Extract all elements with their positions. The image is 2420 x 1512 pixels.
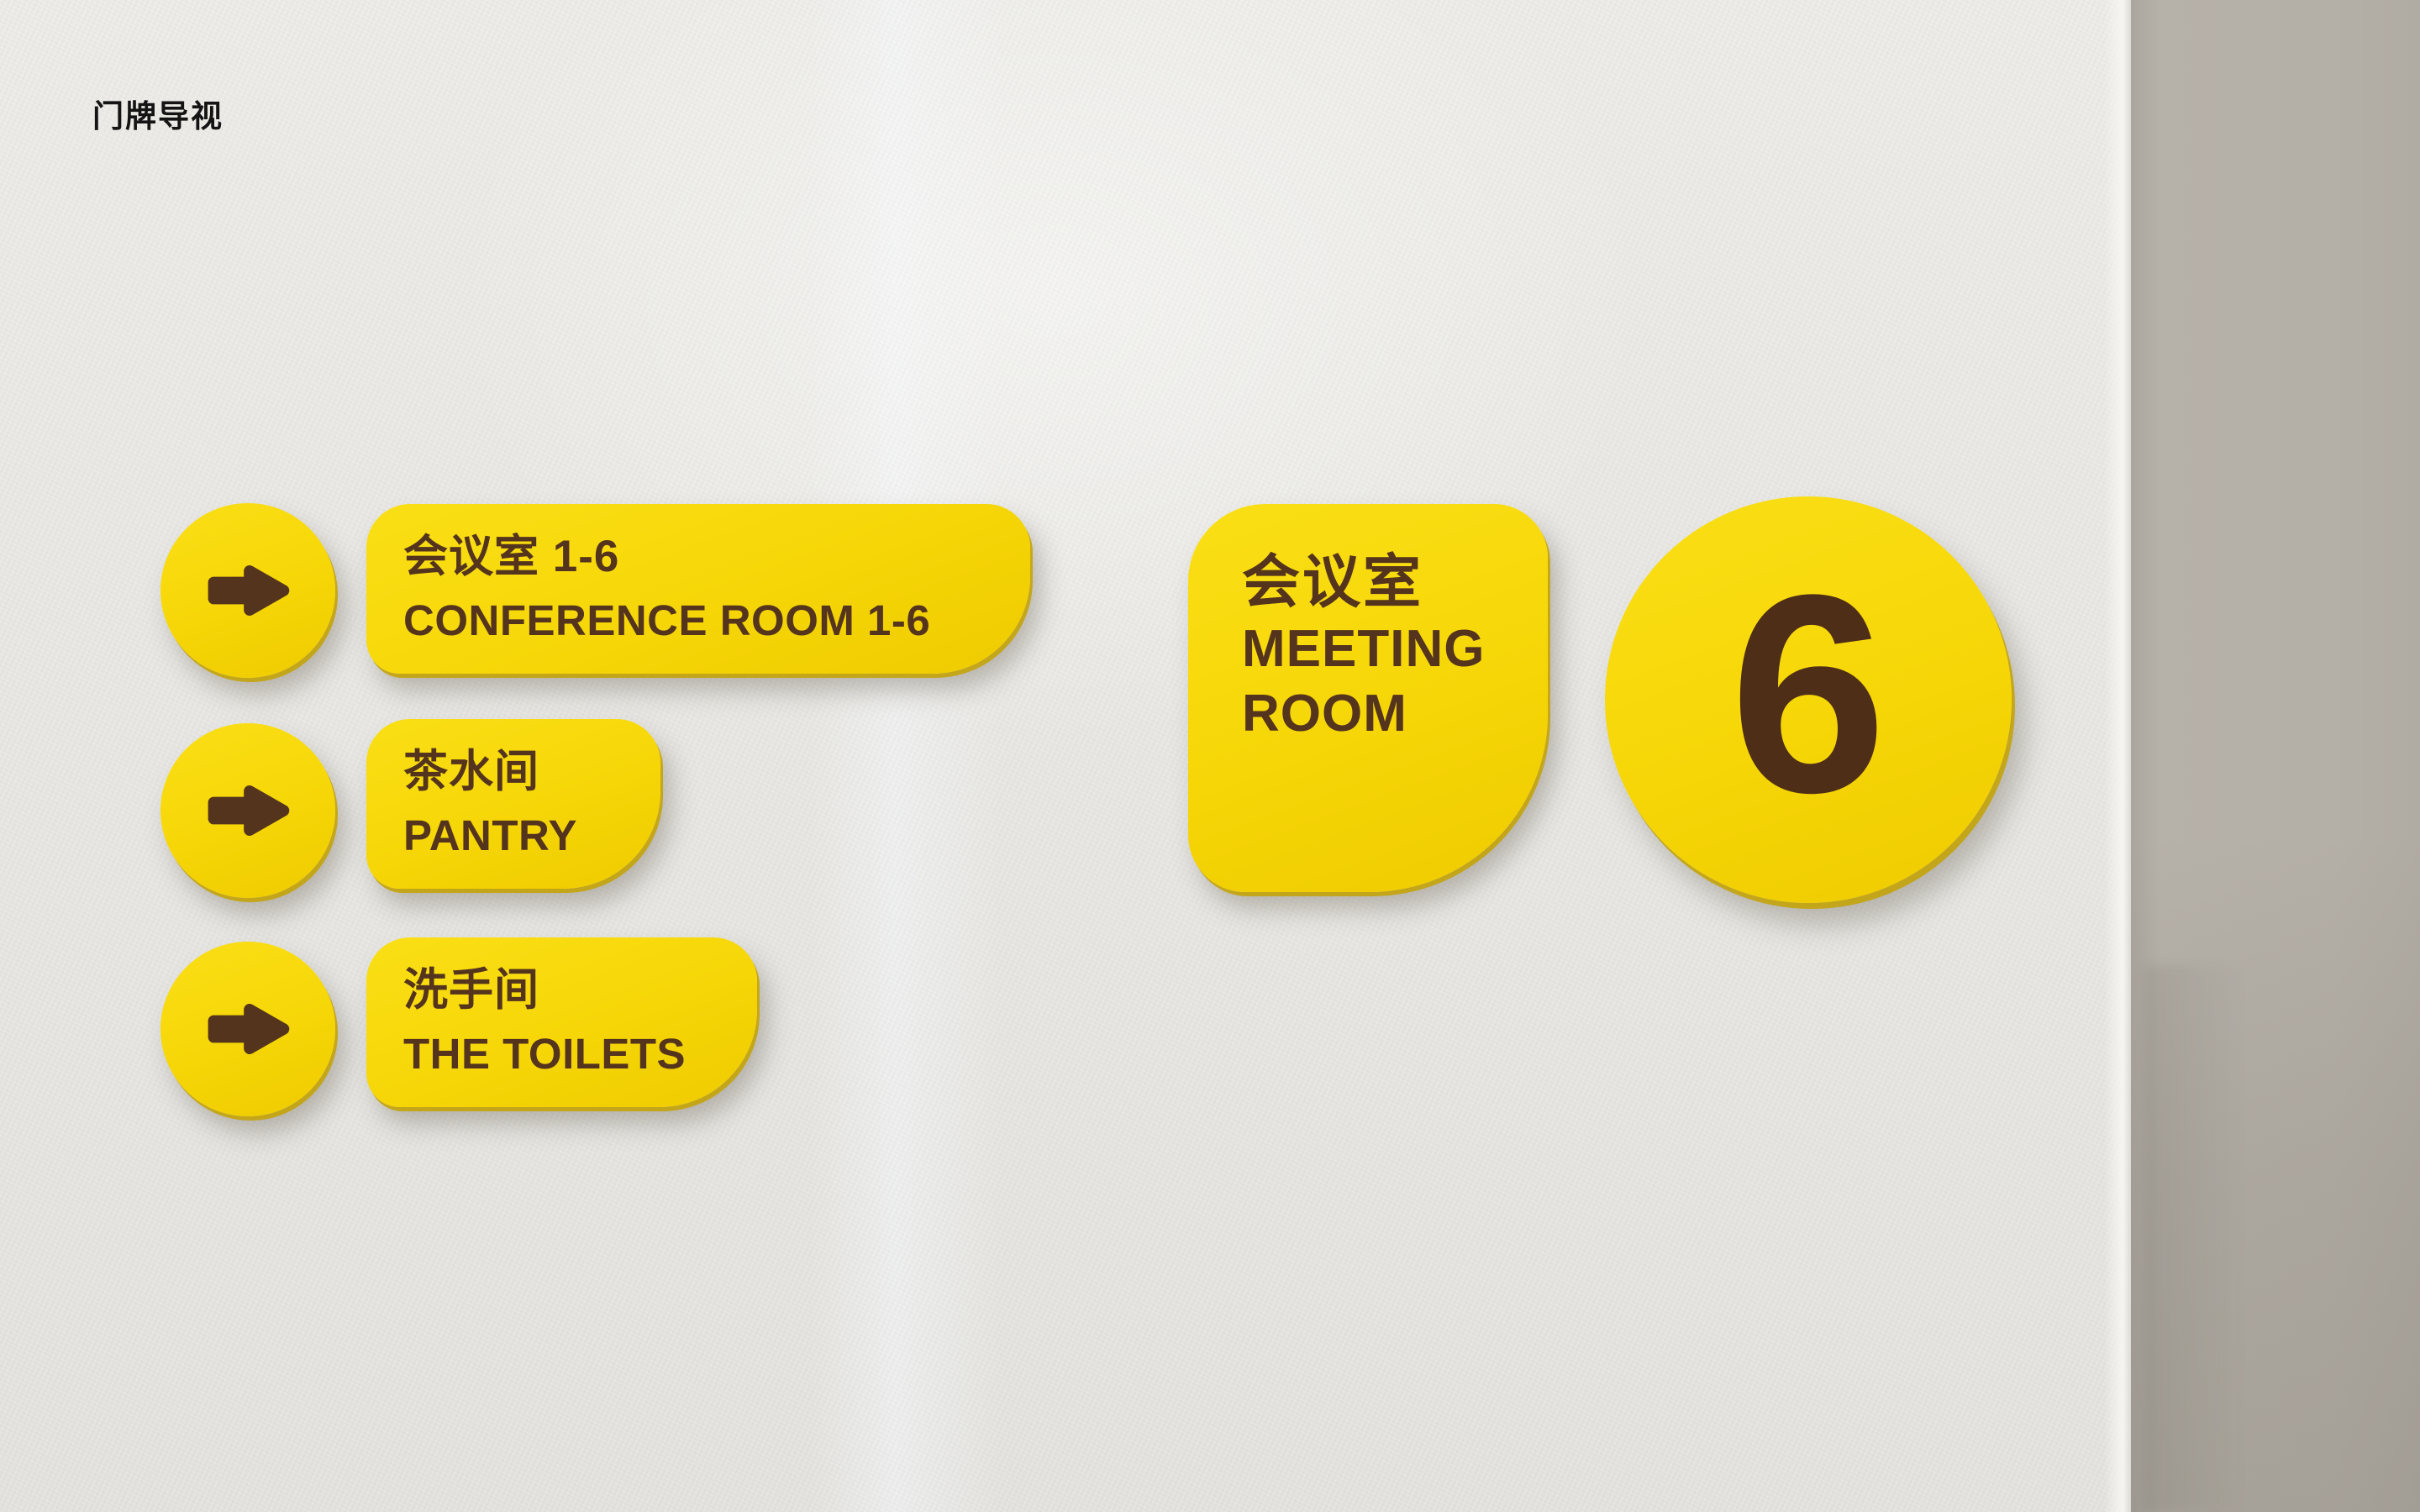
room-number: 6 (1730, 554, 1887, 836)
directory-sign-pantry: 茶水间 PANTRY (366, 719, 660, 889)
arrow-badge (160, 503, 335, 678)
wall-corner-highlight (2104, 0, 2131, 1512)
directory-sign-conference: 会议室 1-6 CONFERENCE ROOM 1-6 (366, 504, 1030, 674)
room-zh-label: 会议室 (1242, 548, 1548, 617)
arrow-right-icon (199, 556, 297, 625)
arrow-right-icon (199, 776, 297, 845)
directory-sign-toilets: 洗手间 THE TOILETS (366, 937, 757, 1107)
sign-en-label: CONFERENCE ROOM 1-6 (403, 589, 1030, 653)
arrow-badge (160, 942, 335, 1116)
meeting-room-sign: 会议室 MEETING ROOM (1188, 504, 1548, 892)
sign-en-label: PANTRY (403, 804, 660, 868)
sign-en-label: THE TOILETS (403, 1022, 757, 1086)
wall-side-shadow (2144, 966, 2270, 1512)
room-number-sign: 6 (1605, 496, 2012, 903)
sign-zh-label: 洗手间 (403, 958, 757, 1022)
page-title: 门牌导视 (92, 91, 224, 136)
room-en-label-line2: ROOM (1242, 681, 1548, 746)
arrow-badge (160, 723, 335, 898)
sign-zh-label: 会议室 1-6 (403, 525, 1030, 589)
arrow-right-icon (199, 995, 297, 1063)
room-en-label-line1: MEETING (1242, 617, 1548, 681)
sign-zh-label: 茶水间 (403, 740, 660, 804)
